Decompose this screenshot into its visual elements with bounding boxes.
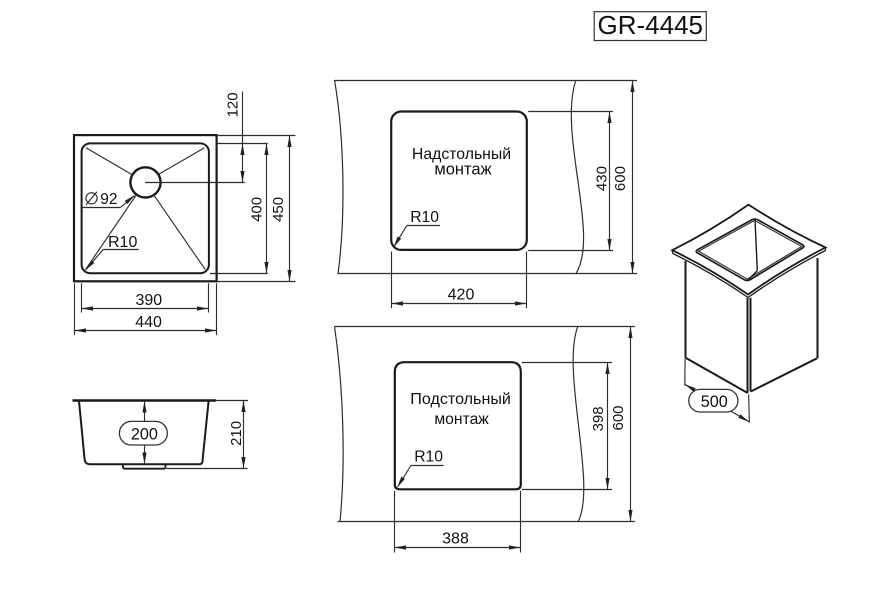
svg-text:GR-4445: GR-4445 — [598, 10, 704, 40]
svg-text:R10: R10 — [108, 234, 137, 251]
svg-text:монтаж: монтаж — [434, 411, 489, 428]
svg-text:монтаж: монтаж — [434, 160, 491, 178]
svg-text:120: 120 — [224, 92, 241, 117]
svg-text:440: 440 — [135, 314, 162, 331]
svg-text:420: 420 — [448, 286, 475, 303]
svg-text:R10: R10 — [414, 449, 443, 466]
svg-text:430: 430 — [593, 166, 610, 191]
svg-text:390: 390 — [135, 292, 162, 309]
svg-text:210: 210 — [228, 421, 245, 446]
svg-text:200: 200 — [131, 426, 158, 444]
svg-text:450: 450 — [270, 197, 287, 222]
svg-text:600: 600 — [612, 166, 629, 191]
svg-text:600: 600 — [610, 405, 627, 430]
svg-text:388: 388 — [442, 530, 469, 547]
svg-text:398: 398 — [590, 406, 607, 431]
svg-text:400: 400 — [248, 197, 265, 222]
svg-text:92: 92 — [100, 191, 117, 208]
svg-text:R10: R10 — [410, 209, 439, 226]
svg-text:Подстольный: Подстольный — [410, 390, 511, 408]
svg-text:500: 500 — [701, 393, 728, 411]
